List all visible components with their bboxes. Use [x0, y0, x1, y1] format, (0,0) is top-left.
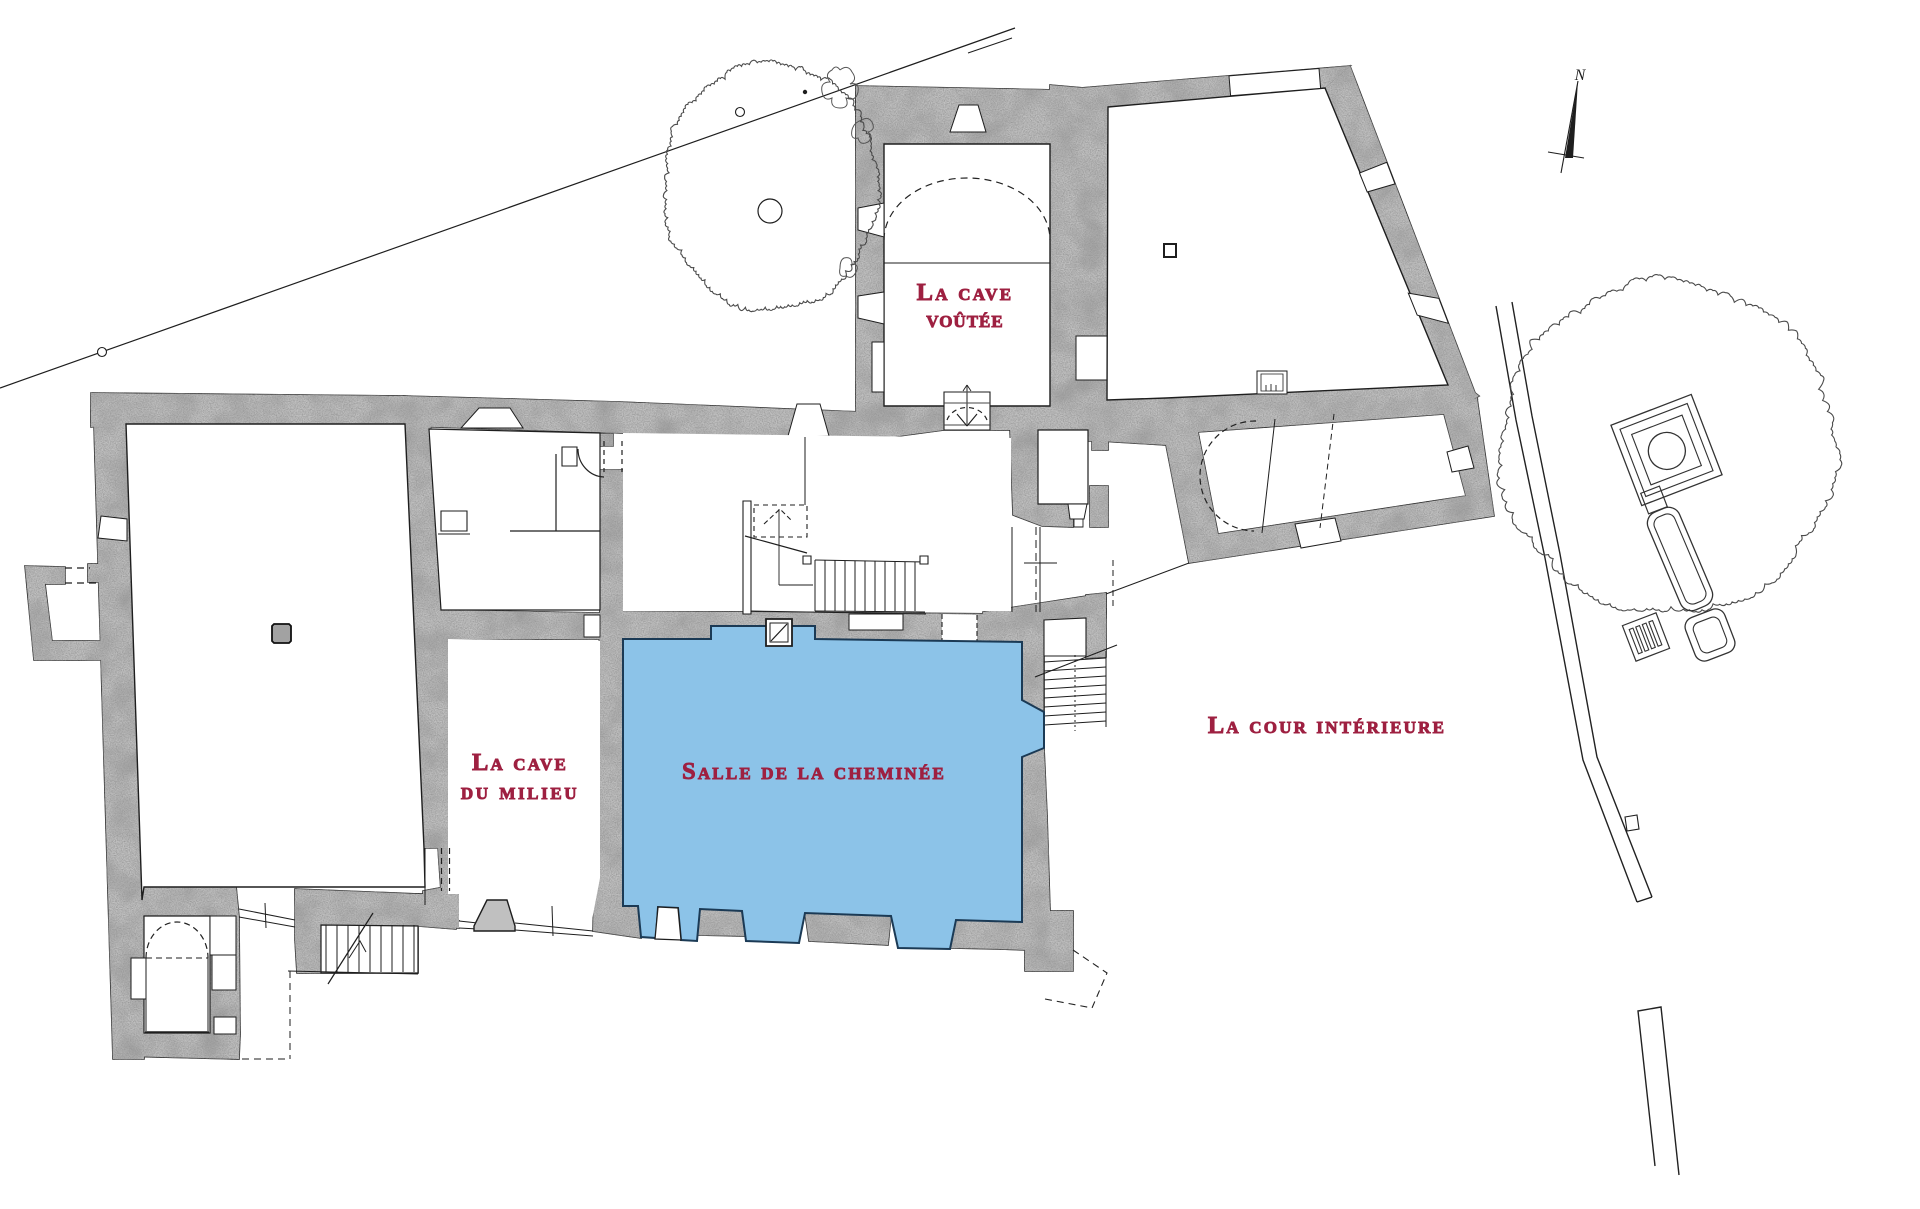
svg-text:voûtée: voûtée	[926, 306, 1003, 333]
svg-text:La cour intérieure: La cour intérieure	[1208, 712, 1446, 739]
svg-text:La cave: La cave	[917, 279, 1014, 306]
svg-text:du milieu: du milieu	[461, 778, 579, 805]
svg-text:N: N	[1574, 67, 1587, 84]
svg-text:Salle de la cheminée: Salle de la cheminée	[682, 758, 946, 785]
svg-text:La cave: La cave	[472, 749, 568, 776]
